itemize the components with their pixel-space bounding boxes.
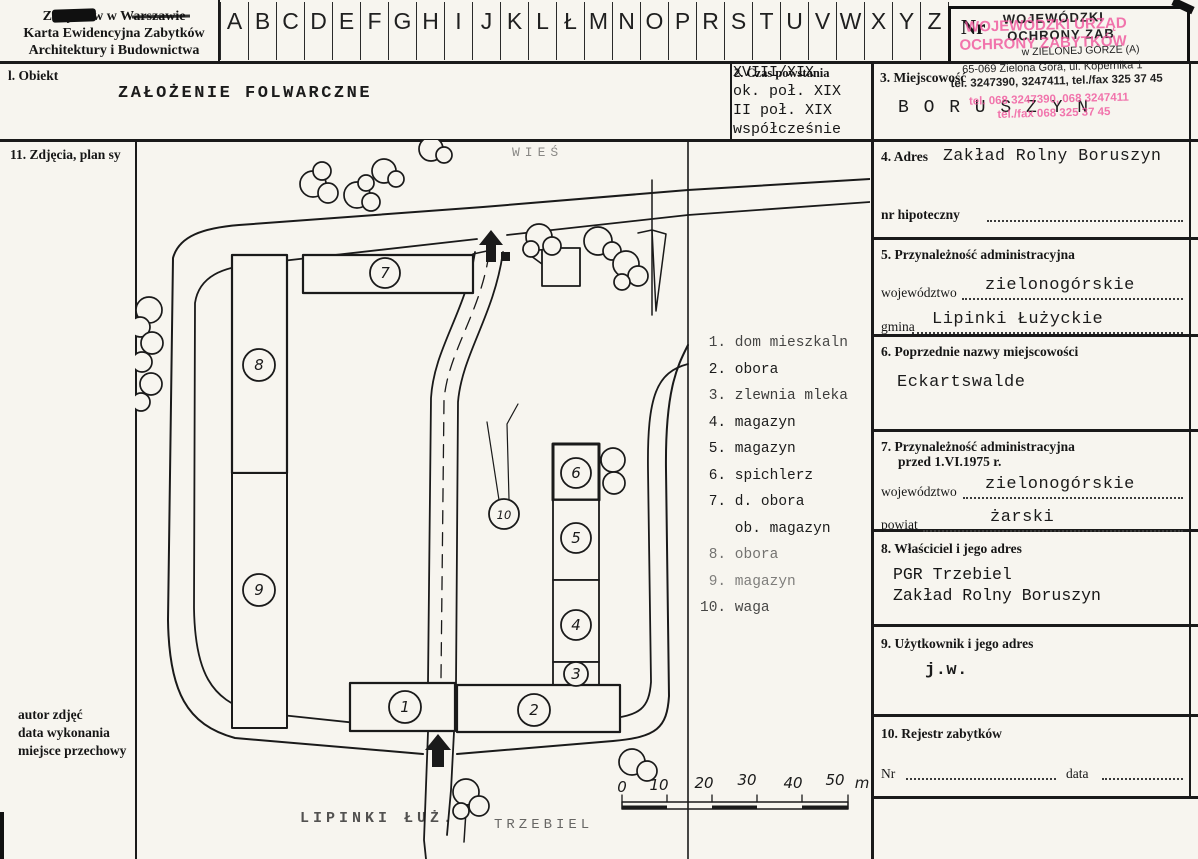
alphabet-letter-19: T: [753, 2, 781, 60]
voivodeship-value: zielonogórskie: [985, 276, 1135, 295]
legend-item-9: 9. magazyn: [700, 569, 872, 596]
scale-tick-50: 50: [825, 771, 844, 789]
number-2: 2: [529, 701, 539, 719]
former-name-value: Eckartswalde: [897, 373, 1025, 392]
voivodeship-before-value: zielonogórskie: [985, 475, 1135, 494]
field-8-owner-label: 8. Właściciel i jego adres: [881, 541, 1022, 557]
legend-item-6: 7. d. obora: [700, 489, 872, 516]
number-7: 7: [380, 264, 390, 282]
alphabet-letter-8: I: [445, 2, 473, 60]
alphabet-letter-7: H: [417, 2, 445, 60]
alphabet-letter-17: R: [697, 2, 725, 60]
owner-line-0: PGR Trzebiel: [893, 564, 1101, 585]
commune-label: gmina: [881, 319, 915, 335]
office-stamp: WOJEWÓDZKI OCHRONY ZAB w ZIELONEJ GÓRZE …: [945, 3, 1198, 122]
register-nr-label: Nr: [881, 766, 895, 782]
date-line-0: XVIII/XIX: [733, 63, 841, 82]
register-date-label: data: [1066, 766, 1089, 782]
number-10: 10: [497, 508, 512, 522]
legend-item-10: 10. waga: [700, 595, 872, 622]
number-8: 8: [254, 356, 264, 374]
divider: [872, 796, 1198, 799]
number-3: 3: [571, 665, 581, 683]
alphabet-letter-22: W: [837, 2, 865, 60]
date-line-3: współcześnie: [733, 120, 841, 139]
scale-tick-0: 0: [617, 778, 627, 796]
alphabet-letter-24: Y: [893, 2, 921, 60]
photo-credits-block: autor zdjęćdata wykonaniamiejsce przecho…: [18, 706, 135, 760]
credit-line-0: autor zdjęć: [18, 706, 135, 724]
alphabet-letter-10: K: [501, 2, 529, 60]
owner-line-1: Zakład Rolny Boruszyn: [893, 585, 1101, 606]
field-7-admin-before-label2: przed 1.VI.1975 r.: [898, 454, 1001, 470]
legend-item-5: 6. spichlerz: [700, 463, 872, 490]
gate-marker: [501, 252, 510, 261]
legend-item-7: ob. magazyn: [700, 516, 872, 543]
building-number-circles: [243, 258, 591, 726]
scale-bar: [622, 795, 848, 809]
alphabet-letter-14: N: [613, 2, 641, 60]
alphabet-letter-12: Ł: [557, 2, 585, 60]
field-1-object-value: ZAŁOŻENIE FOLWARCZNE: [118, 84, 372, 103]
legend-item-3: 4. magazyn: [700, 410, 872, 437]
waga-lead-lines: [487, 404, 518, 500]
alphabet-letter-6: G: [389, 2, 417, 60]
alphabet-letter-20: U: [781, 2, 809, 60]
alphabet-index-strip: ABCDEFGHIJKLŁMNOPRSTUVWXYZ: [220, 2, 949, 60]
county-label: powiat: [881, 517, 918, 533]
divider: [872, 334, 1198, 337]
field-10-register-label: 10. Rejestr zabytków: [881, 726, 1002, 742]
user-value: j.w.: [925, 661, 968, 680]
voivodeship-label: województwo: [881, 285, 957, 301]
legend-item-8: 8. obora: [700, 542, 872, 569]
field-2-date-values: XVIII/XIXok. poł. XIXII poł. XIXwspółcze…: [733, 63, 841, 139]
divider: [872, 429, 1198, 432]
alphabet-letter-3: D: [305, 2, 333, 60]
ink-blob: [52, 8, 96, 23]
alphabet-letter-13: M: [585, 2, 613, 60]
alphabet-letter-2: C: [277, 2, 305, 60]
scale-unit: m: [855, 774, 870, 792]
number-1: 1: [400, 698, 410, 716]
field-6-former-names-label: 6. Poprzednie nazwy miejscowości: [881, 344, 1078, 360]
buildings: [232, 248, 620, 732]
field-4-address-value: Zakład Rolny Boruszyn: [943, 146, 1161, 165]
scale-tick-20: 20: [694, 774, 713, 792]
register-date-line: [1102, 764, 1183, 780]
alphabet-letter-0: A: [221, 2, 249, 60]
field-11-photos-label: 11. Zdjęcia, plan sy: [10, 147, 134, 163]
heritage-record-card: Zabytków w Warszawie Karta Ewidencyjna Z…: [0, 0, 1198, 859]
divider: [872, 714, 1198, 717]
scale-tick-40: 40: [783, 774, 802, 792]
credit-line-2: miejsce przechowy: [18, 742, 135, 760]
divider: [872, 237, 1198, 240]
scan-artifact: [0, 812, 4, 859]
central-road: [424, 252, 503, 859]
number-4: 4: [571, 616, 581, 634]
alphabet-letter-5: F: [361, 2, 389, 60]
field-1-object-label: l. Obiekt: [8, 68, 58, 84]
alphabet-letter-23: X: [865, 2, 893, 60]
alphabet-letter-1: B: [249, 2, 277, 60]
date-line-2: II poł. XIX: [733, 101, 841, 120]
number-5: 5: [571, 529, 581, 547]
scale-tick-10: 10: [649, 776, 668, 794]
register-nr-line: [906, 764, 1056, 780]
number-9: 9: [254, 581, 264, 599]
mortgage-number-line: [987, 206, 1183, 222]
scale-tick-30: 30: [737, 771, 756, 789]
alphabet-letter-11: L: [529, 2, 557, 60]
owner-value-block: PGR TrzebielZakład Rolny Boruszyn: [893, 564, 1101, 606]
field-4-address-label: 4. Adres: [881, 149, 928, 165]
field-5-admin-label: 5. Przynależność administracyjna: [881, 247, 1075, 263]
number-6: 6: [571, 464, 581, 482]
road-label-trzebiel: TRZEBIEL: [494, 817, 593, 833]
road-label-lipinki: LIPINKI ŁUŻ.: [300, 810, 456, 827]
commune-value: Lipinki Łużyckie: [932, 310, 1103, 329]
field-9-user-label: 9. Użytkownik i jego adres: [881, 636, 1033, 652]
org-line-3: Architektury i Budownictwa: [10, 42, 218, 59]
alphabet-letter-21: V: [809, 2, 837, 60]
alphabet-letter-9: J: [473, 2, 501, 60]
county-value: żarski: [990, 508, 1054, 527]
org-line-2: Karta Ewidencyjna Zabytków: [10, 25, 218, 42]
divider: [218, 0, 220, 61]
divider: [872, 624, 1198, 627]
voivodeship-before-label: województwo: [881, 484, 957, 500]
stamp-pink-line: tel./fax 068 325 37 45: [997, 106, 1110, 121]
plan-legend: 1. dom mieszkaln 2. obora 3. zlewnia mle…: [700, 330, 872, 622]
mortgage-number-label: nr hipoteczny: [881, 207, 960, 223]
field-7-admin-before-label: 7. Przynależność administracyjna: [881, 439, 1075, 455]
credit-line-1: data wykonania: [18, 724, 135, 742]
alphabet-letter-15: O: [641, 2, 669, 60]
legend-item-2: 3. zlewnia mleka: [700, 383, 872, 410]
divider: [730, 61, 732, 139]
north-arrow: [638, 180, 666, 315]
building-numbers: 7 8 9 6 5 4 3 1 2 10: [254, 264, 581, 719]
alphabet-letter-18: S: [725, 2, 753, 60]
legend-item-4: 5. magazyn: [700, 436, 872, 463]
alphabet-letter-4: E: [333, 2, 361, 60]
legend-item-0: 1. dom mieszkaln: [700, 330, 872, 357]
village-label: WIEŚ: [512, 145, 563, 160]
legend-item-1: 2. obora: [700, 357, 872, 384]
alphabet-letter-16: P: [669, 2, 697, 60]
date-line-1: ok. poł. XIX: [733, 82, 841, 101]
